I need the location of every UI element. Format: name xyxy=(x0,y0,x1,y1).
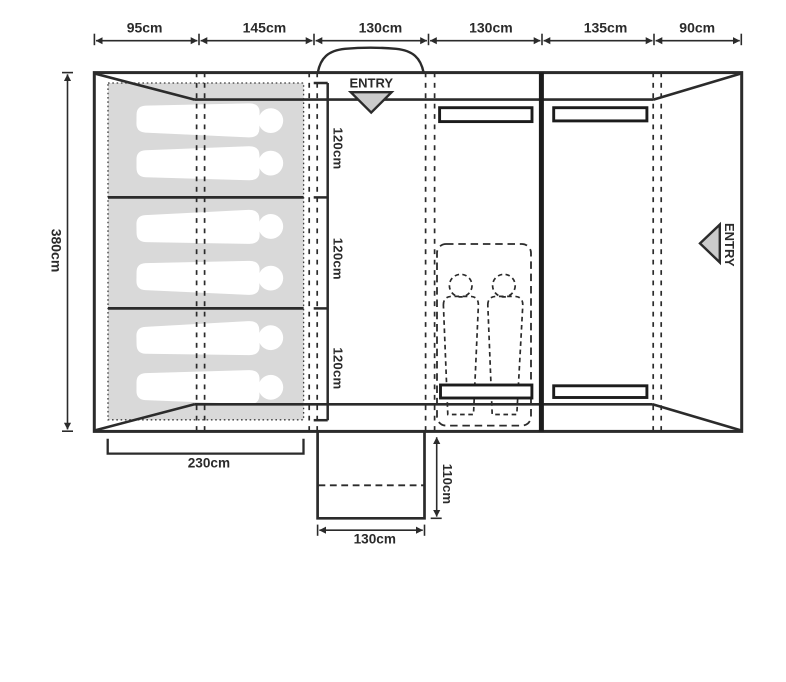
svg-text:230cm: 230cm xyxy=(188,456,230,471)
svg-text:110cm: 110cm xyxy=(440,464,455,504)
svg-text:130cm: 130cm xyxy=(359,19,403,35)
svg-text:130cm: 130cm xyxy=(469,19,513,35)
svg-text:130cm: 130cm xyxy=(354,532,396,547)
svg-text:145cm: 145cm xyxy=(243,19,287,35)
svg-text:120cm: 120cm xyxy=(331,238,346,280)
svg-text:ENTRY: ENTRY xyxy=(722,223,737,267)
svg-text:90cm: 90cm xyxy=(679,19,715,35)
svg-text:380cm: 380cm xyxy=(49,229,65,273)
svg-text:135cm: 135cm xyxy=(584,19,628,35)
svg-text:ENTRY: ENTRY xyxy=(350,76,394,91)
svg-text:95cm: 95cm xyxy=(127,19,163,35)
svg-text:120cm: 120cm xyxy=(331,347,346,389)
svg-text:120cm: 120cm xyxy=(331,127,346,169)
